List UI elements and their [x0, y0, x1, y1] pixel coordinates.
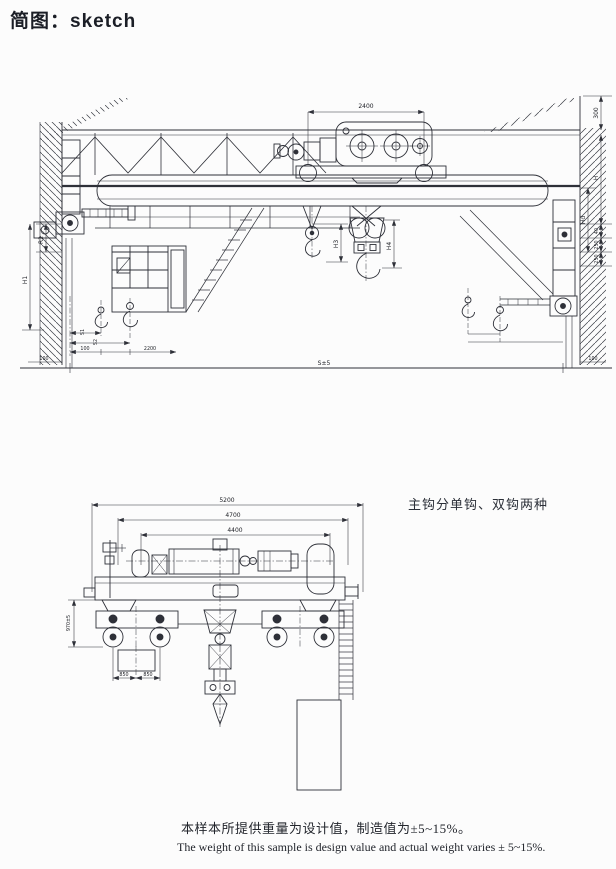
dim-bogie-a: 850 — [119, 672, 128, 678]
dim-right-h: H — [593, 176, 600, 181]
dim-outer-wheelbase: 4700 — [225, 512, 240, 519]
dim-bogie-b: 850 — [143, 672, 152, 678]
main-hook-block — [349, 206, 385, 282]
dim-aux-hook-h3: H3 — [333, 240, 340, 249]
dim-left-r2: R2 — [38, 236, 45, 244]
operator-cab — [112, 246, 186, 312]
front-elevation-view: 2400 300 H 40 250 250 Hd — [20, 96, 612, 373]
dim-hook-gauge: 2200 — [144, 346, 156, 352]
end-view-dimensions-bottom: 970±5 850 850 — [66, 600, 160, 681]
dim-left-h1: H1 — [22, 276, 29, 285]
girder-truss-bracing — [62, 133, 326, 175]
cab-stairs — [186, 208, 264, 312]
dim-floor-right: 100 — [588, 356, 597, 362]
bridge-girder — [62, 175, 580, 206]
runway-beam — [62, 130, 580, 135]
right-hook-approach — [462, 288, 563, 342]
dim-inner-wheelbase: 4400 — [227, 527, 242, 534]
dim-side-height: 970±5 — [66, 615, 72, 631]
crane-technical-drawing: 2400 300 H 40 250 250 Hd — [0, 0, 616, 869]
right-wall-hatch — [484, 96, 606, 365]
dim-right-40: 40 — [594, 228, 600, 234]
drawing-sheet: 简图：sketch 主钩分单钩、双钩两种 本样本所提供重量为设计值，制造值为±5… — [0, 0, 616, 869]
dim-hook-offset: 100 — [80, 346, 89, 352]
dim-right-250a: 250 — [594, 240, 600, 249]
auxiliary-hook — [303, 206, 321, 258]
end-view-dimensions-top: 5200 4700 4400 — [92, 497, 363, 592]
dim-right-250b: 250 — [594, 254, 600, 263]
dim-right-300: 300 — [593, 107, 600, 119]
end-view-hook — [204, 545, 236, 728]
right-end-truck — [460, 200, 577, 368]
dim-span: S±5 — [318, 360, 331, 367]
dim-overall-width: 5200 — [219, 497, 234, 504]
end-view: 5200 4700 4400 — [66, 497, 363, 790]
side-ladder — [297, 600, 353, 790]
front-view-dimensions: 2400 300 H 40 250 250 Hd — [22, 96, 612, 367]
collector-mast — [103, 540, 126, 598]
dim-floor-left: 100 — [39, 356, 48, 362]
dim-trolley-width: 2400 — [358, 103, 373, 110]
trolley-hoist — [274, 122, 446, 183]
dim-s1: S1 — [80, 329, 86, 335]
dim-right-hd: Hd — [580, 216, 587, 225]
ground-line — [20, 363, 612, 373]
dim-s2: S2 — [93, 339, 99, 345]
hoist-machinery — [126, 539, 334, 594]
dim-main-hook-h4: H4 — [386, 242, 393, 251]
